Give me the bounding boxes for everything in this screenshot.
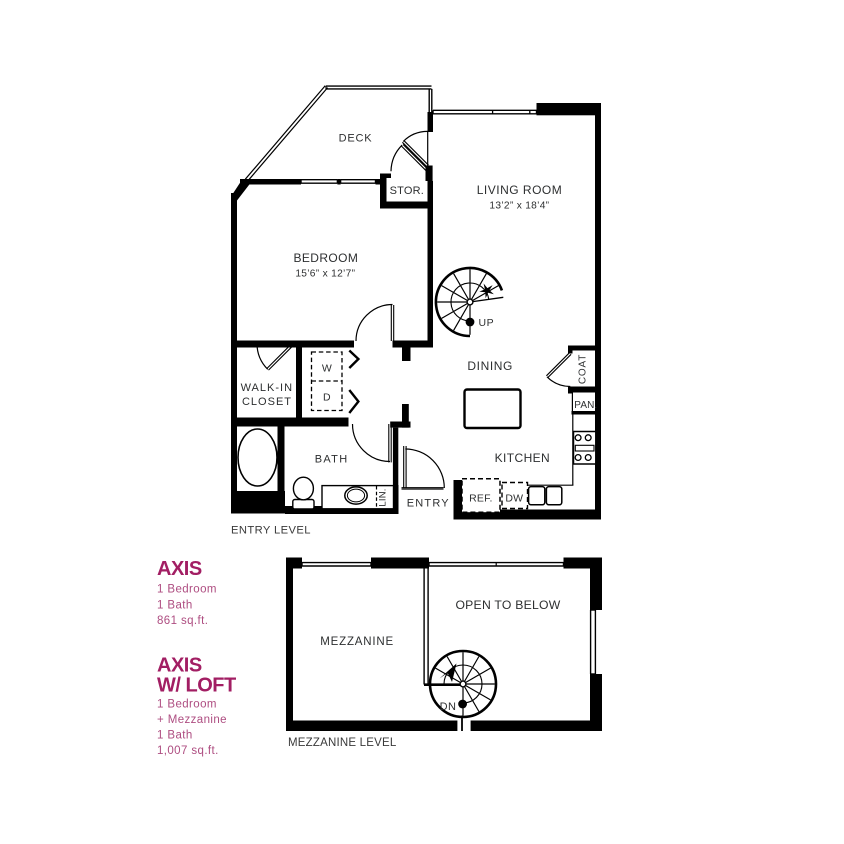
svg-text:ENTRY: ENTRY [407,498,450,510]
svg-text:DECK: DECK [339,133,373,145]
svg-text:1 Bath: 1 Bath [157,599,193,611]
svg-text:1 Bedroom: 1 Bedroom [157,698,217,710]
svg-text:DN: DN [440,701,457,713]
svg-text:MEZZANINE LEVEL: MEZZANINE LEVEL [288,737,397,749]
svg-text:STOR.: STOR. [390,185,424,197]
svg-text:BATH: BATH [315,453,349,465]
svg-text:BEDROOM: BEDROOM [293,251,358,265]
svg-text:DW: DW [505,493,523,505]
svg-text:W/ LOFT: W/ LOFT [157,674,236,696]
svg-text:REF.: REF. [469,493,493,505]
svg-text:861 sq.ft.: 861 sq.ft. [157,615,208,627]
svg-text:OPEN TO BELOW: OPEN TO BELOW [455,598,560,612]
svg-text:+ Mezzanine: + Mezzanine [157,714,227,726]
svg-text:LIVING ROOM: LIVING ROOM [477,183,563,197]
svg-text:CLOSET: CLOSET [242,396,292,408]
svg-text:MEZZANINE: MEZZANINE [320,636,394,648]
svg-text:15’6” x 12’7”: 15’6” x 12’7” [295,269,355,280]
svg-text:LIN.: LIN. [377,488,388,506]
svg-text:1,007 sq.ft.: 1,007 sq.ft. [157,745,219,757]
svg-text:1 Bedroom: 1 Bedroom [157,584,217,596]
svg-text:D: D [323,392,331,404]
svg-text:ENTRY LEVEL: ENTRY LEVEL [231,525,311,537]
svg-text:13’2” x 18’4”: 13’2” x 18’4” [489,200,549,211]
svg-text:AXIS: AXIS [157,558,202,580]
svg-text:AXIS: AXIS [157,655,202,677]
svg-text:W: W [322,363,332,375]
svg-text:1 Bath: 1 Bath [157,730,193,742]
svg-text:KITCHEN: KITCHEN [495,451,550,465]
svg-text:UP: UP [479,317,495,329]
svg-text:WALK-IN: WALK-IN [241,382,293,394]
svg-text:DINING: DINING [467,359,513,373]
svg-text:PAN.: PAN. [574,400,597,411]
svg-text:COAT: COAT [578,354,589,384]
